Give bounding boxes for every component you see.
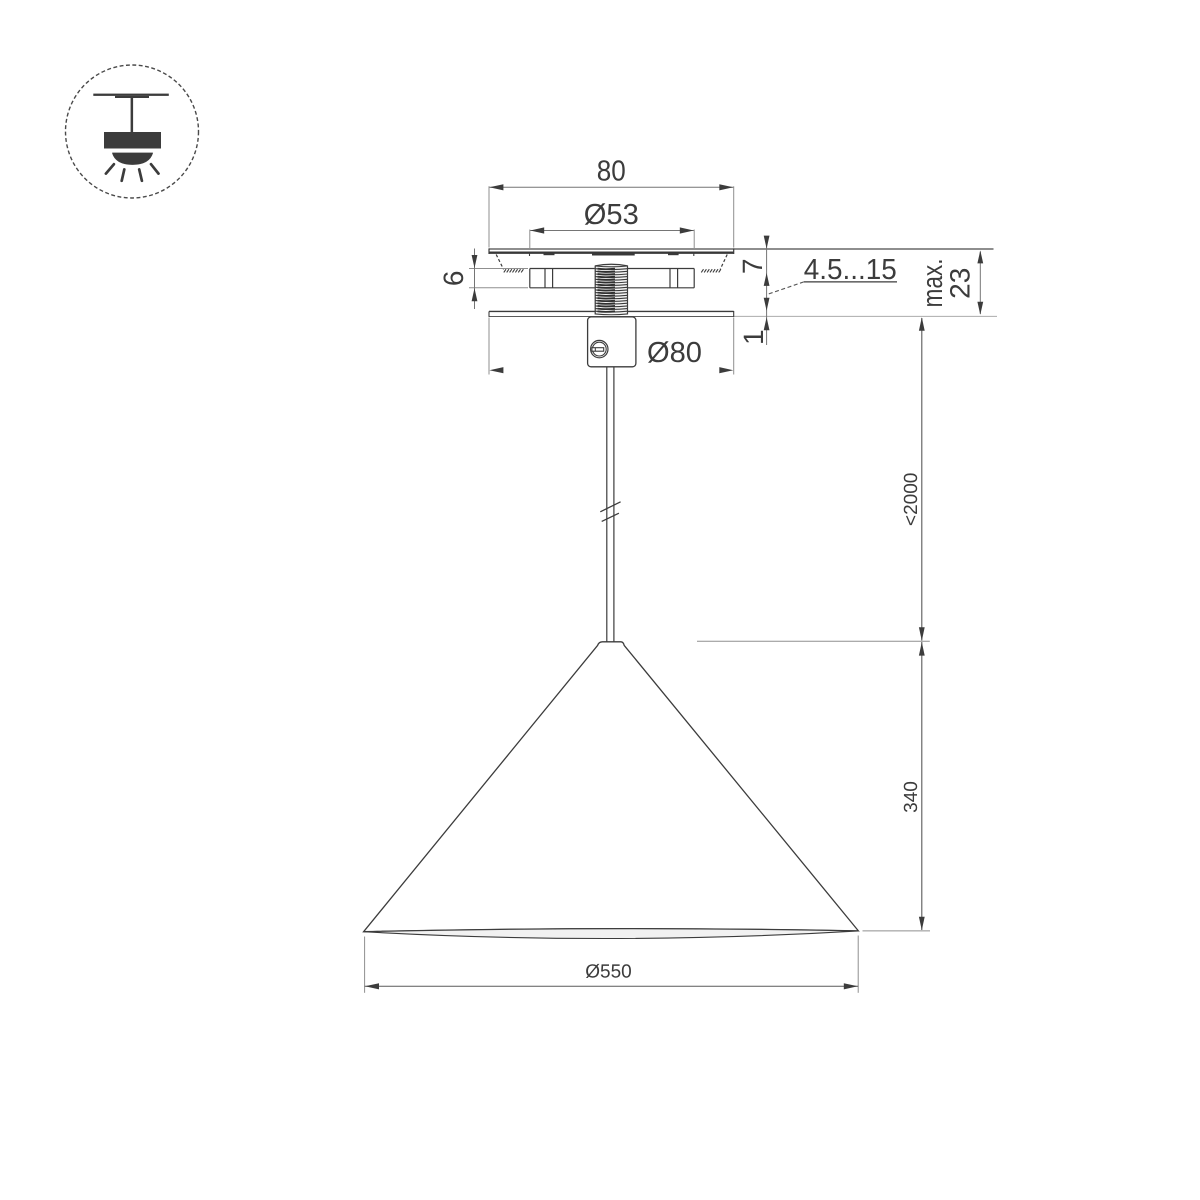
svg-text:23: 23	[945, 268, 976, 299]
svg-text:Ø550: Ø550	[585, 961, 631, 982]
svg-text:4.5...15: 4.5...15	[804, 254, 897, 286]
svg-text:Ø53: Ø53	[584, 199, 639, 231]
svg-text:max.: max.	[917, 259, 948, 308]
svg-text:7: 7	[737, 258, 768, 274]
svg-text:80: 80	[597, 156, 626, 188]
svg-text:1: 1	[738, 329, 769, 345]
svg-text:6: 6	[438, 271, 469, 287]
svg-text:340: 340	[901, 781, 922, 813]
svg-text:<2000: <2000	[901, 473, 922, 526]
svg-text:Ø80: Ø80	[647, 337, 702, 369]
